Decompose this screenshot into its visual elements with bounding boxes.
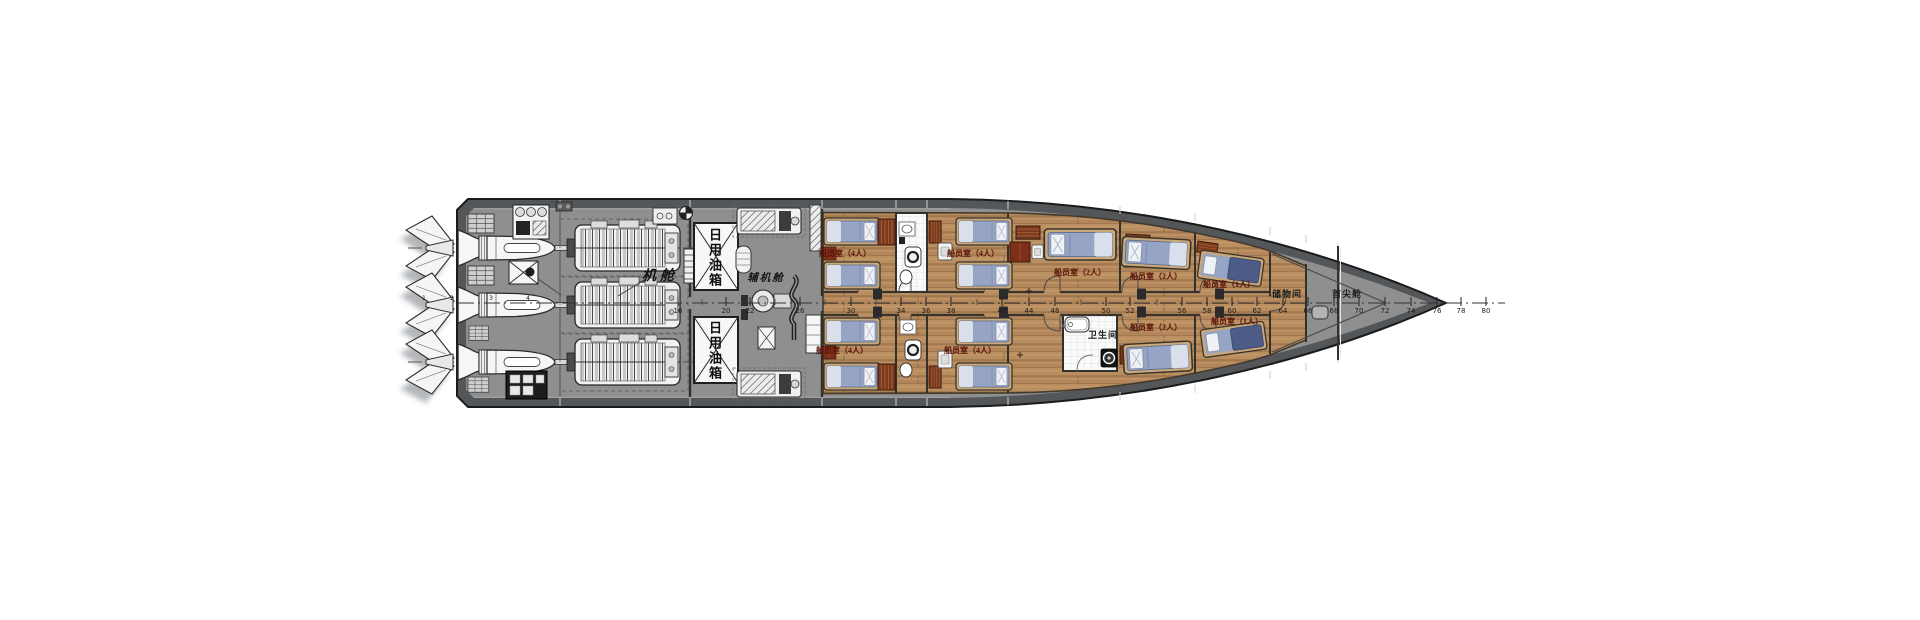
frame-number: 80 [1482, 307, 1491, 315]
bed [956, 363, 1012, 390]
frame-number: 26 [796, 307, 805, 315]
switchboard [506, 371, 547, 399]
frame-number: 52 [1126, 307, 1135, 315]
frame-number: 66 [1304, 307, 1313, 315]
waterjet-callout: 4 [526, 295, 530, 302]
crew-cabin-4-label: 船员室（4人） [944, 345, 996, 355]
frame-number: 56 [1178, 307, 1187, 315]
locker [1016, 226, 1040, 239]
aft-aux-box [653, 208, 677, 224]
main-engine-2 [560, 276, 688, 334]
bathtub [1065, 317, 1089, 332]
frame-number: 22 [746, 307, 755, 315]
frame-number: 60 [1228, 307, 1237, 315]
bathroom-label: 卫生间 [1088, 329, 1118, 340]
waterjet-callout: 3 [489, 295, 493, 302]
frame-number: 30 [847, 307, 856, 315]
registration-mark-icon [680, 207, 693, 220]
crew-cabin-2-label: 船员室（2人） [1054, 267, 1106, 277]
frame-number: 64 [1279, 307, 1288, 315]
radiator [810, 205, 821, 251]
gauge-panel [513, 205, 549, 239]
deck-fitting [556, 202, 572, 211]
frame-number: 34 [897, 307, 906, 315]
small-cooler [758, 327, 775, 349]
locker [878, 364, 895, 390]
crew-cabin-1-label: 船员室（1人） [1211, 316, 1263, 326]
bed [1123, 341, 1193, 374]
bed [1121, 236, 1191, 269]
ship-deck-plan: 16 20 22 26 30 34 36 38 42 44 46 50 52 5… [0, 0, 1920, 620]
day-fuel-tank-label-top: 日用油箱 [708, 228, 721, 288]
bed [956, 218, 1012, 245]
crew-cabin-4-label: 船员室（4人） [819, 248, 871, 258]
locker [929, 221, 941, 243]
frame-number: 38 [947, 307, 956, 315]
valve-1 [741, 295, 748, 306]
aux-engine-room-label: 辅机舱 [747, 271, 785, 284]
battery-rack-2 [468, 266, 494, 285]
battery-rack-1 [468, 214, 494, 233]
frame-number: 58 [1203, 307, 1212, 315]
bed [824, 318, 880, 345]
frame-number: 20 [722, 307, 731, 315]
ga-plan-svg: 16 20 22 26 30 34 36 38 42 44 46 50 52 5… [0, 0, 1920, 620]
frame-number: 44 [1025, 307, 1034, 315]
generator-top [733, 205, 805, 237]
bed [956, 318, 1012, 345]
frame-number: 50 [1102, 307, 1111, 315]
frame-number: 16 [674, 307, 683, 315]
bed [1044, 229, 1116, 260]
hatch [1312, 306, 1328, 319]
frame-number: 74 [1407, 307, 1416, 315]
crew-cabin-2-label: 船员室（2人） [1130, 271, 1182, 281]
battery-rack-3 [469, 326, 489, 340]
bed [824, 218, 880, 245]
bed [824, 363, 880, 390]
bed [824, 262, 880, 289]
bed [956, 262, 1012, 289]
crew-cabin-2-label: 船员室（2人） [1130, 322, 1182, 332]
desk [1032, 245, 1043, 259]
crew-cabin-4-label: 船员室（4人） [816, 345, 868, 355]
frame-number: 62 [1253, 307, 1262, 315]
waterjet-callout: 1 [422, 295, 426, 302]
frame-number: 76 [1433, 307, 1442, 315]
storage-room-label: 储物间 [1272, 288, 1302, 299]
crew-cabin-1-label: 船员室（1人） [1203, 279, 1255, 289]
waterjet-callout: 2 [450, 295, 454, 302]
frame-number: 72 [1381, 307, 1390, 315]
battery-rack-4 [468, 377, 489, 392]
frame-number: 42 [998, 307, 1007, 315]
frame-number: 46 [1051, 307, 1060, 315]
locker [878, 219, 895, 245]
fore-peak-label: 首尖舱 [1332, 288, 1362, 299]
generator-bottom [733, 368, 805, 400]
calorifier [736, 246, 751, 273]
frame-number: 70 [1355, 307, 1364, 315]
washing-machine [1101, 349, 1117, 367]
main-engine-3 [560, 333, 688, 391]
frame-number: 68 [1330, 307, 1339, 315]
day-fuel-tank-label-bottom: 日用油箱 [708, 321, 721, 381]
locker [929, 366, 941, 388]
crew-cabin-4-label: 船员室（4人） [947, 248, 999, 258]
frame-number: 36 [922, 307, 931, 315]
frame-number: 78 [1457, 307, 1466, 315]
wardrobe [1010, 242, 1030, 262]
engine-room-label: 机舱 [642, 267, 678, 284]
